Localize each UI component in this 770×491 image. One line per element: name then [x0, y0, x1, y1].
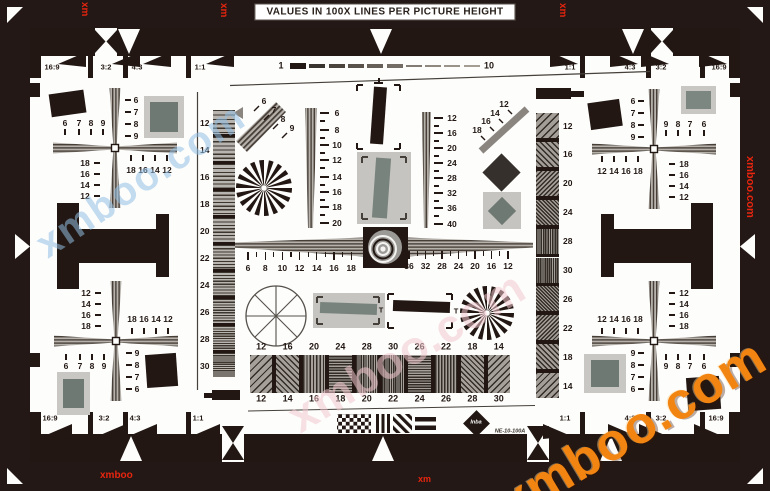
- scale-label: 7: [688, 362, 693, 371]
- scale-label: 22: [200, 254, 209, 263]
- scale-label: 9: [664, 362, 669, 371]
- scale-label: 16: [679, 171, 688, 180]
- scale-label: 16: [487, 262, 496, 271]
- scale-label: 24: [454, 262, 463, 271]
- striped-bar-segment: [213, 353, 235, 377]
- dash-mark: [434, 162, 443, 164]
- scale-label: 32: [447, 189, 456, 198]
- ruler-tick: [417, 251, 418, 256]
- scale-label: 16: [81, 311, 90, 320]
- corner-registration-mark: [357, 148, 363, 150]
- scale-label: 24: [415, 395, 425, 404]
- scale-label: 6: [135, 385, 140, 394]
- dash-scale-step: [309, 64, 325, 69]
- dash-scale-step: [367, 64, 383, 68]
- dash-mark: [125, 111, 132, 113]
- tick-mark: [637, 156, 638, 162]
- ruler-tick: [273, 252, 274, 257]
- tick-mark: [143, 328, 144, 334]
- corner-registration-mark: [362, 218, 368, 220]
- dash-mark: [434, 140, 439, 142]
- ruler-tick: [316, 252, 317, 260]
- scale-label: 20: [309, 343, 319, 352]
- ruler-tick: [483, 251, 484, 256]
- tick-mark: [703, 130, 704, 136]
- corner-registration-mark: [357, 84, 363, 86]
- ruler-tick: [491, 251, 492, 259]
- tick-mark: [79, 354, 80, 360]
- scale-label: 20: [362, 395, 372, 404]
- tick-mark: [689, 354, 690, 360]
- scale-label: 14: [151, 315, 160, 324]
- dash-mark: [434, 215, 439, 217]
- scale-label: 6: [262, 97, 267, 106]
- scale-label: 14: [200, 146, 209, 155]
- corner-registration-mark: [399, 85, 401, 91]
- scale-label: 12: [597, 167, 606, 176]
- scale-label: 7: [77, 119, 82, 128]
- ruler-tick: [458, 251, 459, 259]
- striped-bar-segment: [213, 164, 235, 188]
- scale-label: 12: [295, 264, 304, 273]
- scale-label: 18: [332, 203, 341, 212]
- corner-registration-mark: [362, 156, 368, 158]
- ruler-tick: [333, 252, 334, 260]
- scale-label: 18: [335, 395, 345, 404]
- tick-mark: [65, 354, 66, 360]
- dash-mark: [95, 314, 102, 316]
- scale-label: 20: [332, 219, 341, 228]
- chart-title: VALUES IN 100X LINES PER PICTURE HEIGHT: [254, 4, 515, 21]
- aspect-ratio-label: 1:1: [560, 414, 571, 422]
- ruler-tick: [441, 251, 442, 259]
- dash-mark: [434, 192, 443, 194]
- scale-label: 12: [597, 315, 606, 324]
- striped-bar-segment: [536, 113, 559, 138]
- tick-mark: [91, 354, 92, 360]
- resolution-bar-segment: [303, 355, 325, 393]
- chart-title-text: VALUES IN 100X LINES PER PICTURE HEIGHT: [266, 7, 503, 18]
- scale-label: 18: [633, 315, 642, 324]
- scale-label: 6: [246, 264, 251, 273]
- scale-label: 18: [472, 126, 481, 135]
- scale-label: 24: [563, 208, 572, 217]
- tick-mark: [677, 130, 678, 136]
- resolution-bar-segment: [408, 355, 430, 393]
- scale-label: 12: [499, 100, 508, 109]
- dash-mark: [669, 174, 676, 176]
- tick-mark: [613, 328, 614, 334]
- scale-label: 7: [78, 362, 83, 371]
- ruler-tick: [342, 252, 343, 257]
- scale-label: 6: [631, 97, 636, 106]
- scale-label: 14: [494, 343, 504, 352]
- dash-scale-step: [329, 64, 345, 68]
- scale-label: 9: [631, 133, 636, 142]
- corner-registration-mark: [361, 157, 363, 163]
- striped-bar-segment: [536, 344, 559, 369]
- corner-registration-mark: [388, 293, 394, 295]
- tick-mark: [625, 156, 626, 162]
- scale-label: 24: [447, 159, 456, 168]
- tick-mark: [103, 354, 104, 360]
- scale-label: 28: [447, 174, 456, 183]
- scale-label: 14: [312, 264, 321, 273]
- aspect-ratio-label: 4:3: [625, 414, 636, 422]
- corner-registration-mark: [399, 143, 401, 149]
- corner-registration-mark: [378, 297, 380, 303]
- ruler-tick: [425, 251, 426, 259]
- dash-mark: [126, 352, 133, 354]
- dash-mark: [434, 117, 443, 119]
- striped-bar-segment: [536, 286, 559, 311]
- scale-label: 10: [332, 141, 341, 150]
- corner-registration-mark: [317, 296, 323, 298]
- resolution-bar-segment: [276, 355, 298, 393]
- corner-registration-mark: [378, 318, 380, 324]
- scale-label: 6: [631, 385, 636, 394]
- scale-label: 18: [563, 352, 572, 361]
- scale-label: 12: [679, 193, 688, 202]
- scale-label: 9: [102, 362, 107, 371]
- scale-label: 14: [150, 166, 159, 175]
- dash-mark: [125, 135, 132, 137]
- corner-registration-mark: [451, 322, 453, 328]
- striped-bar-segment: [213, 110, 235, 134]
- dash-mark: [320, 191, 329, 193]
- bar-end-t-mark: [204, 393, 212, 398]
- scale-label: 16: [200, 173, 209, 182]
- aspect-ratio-label: 3:2: [101, 63, 112, 71]
- corner-registration-mark: [356, 85, 358, 91]
- scale-label: 12: [332, 156, 341, 165]
- scale-label: 40: [447, 220, 456, 229]
- dash-scale-step: [425, 65, 441, 67]
- scale-label: 26: [441, 395, 451, 404]
- aspect-ratio-label: 16:9: [708, 414, 723, 422]
- striped-bar-segment: [213, 326, 235, 350]
- dash-mark: [94, 173, 101, 175]
- dash-mark: [126, 388, 133, 390]
- ruler-tick: [282, 252, 283, 260]
- scale-label: 8: [263, 264, 268, 273]
- dash-mark: [320, 199, 325, 201]
- dash-scale-end: 10: [484, 62, 494, 71]
- scale-label: 12: [81, 289, 90, 298]
- dash-scale-step: [464, 65, 480, 66]
- scale-label: 18: [679, 160, 688, 169]
- dash-mark: [320, 222, 329, 224]
- tick-mark: [689, 130, 690, 136]
- scale-label: 18: [346, 264, 355, 273]
- resolution-bar-segment: [329, 355, 351, 393]
- scale-label: 14: [679, 182, 688, 191]
- aspect-ratio-label: 3:2: [656, 414, 667, 422]
- scale-label: 20: [470, 262, 479, 271]
- resolution-bar-segment: [488, 355, 510, 393]
- corner-registration-mark: [388, 327, 394, 329]
- scale-label: 16: [138, 166, 147, 175]
- resolution-bar-segment: [356, 355, 378, 393]
- aspect-ratio-label: 16:9: [42, 414, 57, 422]
- scale-label: 12: [256, 343, 266, 352]
- tick-mark: [78, 129, 79, 135]
- scale-label: 9: [664, 120, 669, 129]
- scale-label: 16: [329, 264, 338, 273]
- scale-label: 7: [631, 109, 636, 118]
- ruler-tick: [351, 252, 352, 260]
- aspect-ratio-label: 4:3: [132, 63, 143, 71]
- scale-label: 8: [676, 120, 681, 129]
- dash-mark: [125, 123, 132, 125]
- scale-label: 18: [467, 343, 477, 352]
- dash-mark: [320, 120, 325, 122]
- tick-mark: [64, 129, 65, 135]
- ruler-tick: [499, 251, 500, 256]
- tick-mark: [637, 328, 638, 334]
- scale-label: 22: [441, 343, 451, 352]
- dash-mark: [638, 376, 645, 378]
- dash-mark: [126, 364, 133, 366]
- aspect-ratio-label: 1:1: [565, 63, 576, 71]
- dash-mark: [638, 112, 645, 114]
- corner-registration-mark: [356, 143, 358, 149]
- aspect-ratio-label: 1:1: [195, 63, 206, 71]
- scale-label: 28: [362, 343, 372, 352]
- scale-label: 7: [272, 106, 277, 115]
- dash-mark: [126, 376, 133, 378]
- corner-registration-mark: [387, 322, 389, 328]
- dash-mark: [434, 155, 439, 157]
- aspect-ratio-label: 3:2: [656, 63, 667, 71]
- scale-label: 16: [679, 311, 688, 320]
- scale-label: 9: [290, 124, 295, 133]
- resolution-bar-segment: [461, 355, 483, 393]
- dash-mark: [434, 147, 443, 149]
- scale-label: 26: [563, 295, 572, 304]
- aspect-ratio-label: 16:9: [711, 63, 726, 71]
- dash-mark: [320, 144, 329, 146]
- dash-mark: [434, 185, 439, 187]
- tick-mark: [166, 155, 167, 161]
- scale-label: 6: [702, 120, 707, 129]
- scale-label: 7: [688, 120, 693, 129]
- dash-mark: [320, 214, 325, 216]
- t-mark: T: [454, 307, 459, 315]
- scale-label: 28: [467, 395, 477, 404]
- scale-label: 7: [134, 108, 139, 117]
- scale-label: 16: [563, 150, 572, 159]
- scale-label: 9: [135, 349, 140, 358]
- resolution-bar-segment: [250, 355, 272, 393]
- logo-serial-text: NE-10-100A: [495, 429, 526, 435]
- scale-label: 16: [621, 315, 630, 324]
- ruler-tick: [433, 251, 434, 256]
- dash-mark: [94, 184, 101, 186]
- scale-label: 14: [609, 315, 618, 324]
- corner-registration-mark: [387, 294, 389, 300]
- scale-label: 6: [64, 362, 69, 371]
- scale-label: 14: [679, 300, 688, 309]
- tick-mark: [130, 155, 131, 161]
- dash-mark: [638, 124, 645, 126]
- dash-mark: [320, 159, 329, 161]
- scale-label: 8: [89, 119, 94, 128]
- ruler-tick: [290, 252, 291, 257]
- ruler-tick: [299, 252, 300, 260]
- scale-label: 8: [135, 361, 140, 370]
- bar-end-t-mark: [212, 390, 240, 400]
- dash-mark: [95, 292, 102, 294]
- dash-scale-start: 1: [278, 62, 283, 71]
- scale-label: 16: [332, 188, 341, 197]
- scale-label: 16: [621, 167, 630, 176]
- scale-label: 20: [200, 227, 209, 236]
- scale-label: 36: [447, 204, 456, 213]
- scale-label: 7: [135, 373, 140, 382]
- tick-mark: [613, 156, 614, 162]
- scale-label: 18: [127, 315, 136, 324]
- dash-mark: [94, 195, 101, 197]
- ruler-tick: [450, 251, 451, 256]
- dash-mark: [320, 206, 329, 208]
- scale-label: 6: [335, 109, 340, 118]
- dash-mark: [434, 207, 443, 209]
- scale-label: 9: [101, 119, 106, 128]
- scale-label: 18: [679, 322, 688, 331]
- dash-mark: [320, 129, 329, 131]
- corner-registration-mark: [317, 323, 323, 325]
- striped-bar-segment: [536, 171, 559, 196]
- corner-registration-mark: [405, 213, 407, 219]
- dash-mark: [638, 388, 645, 390]
- dash-mark: [638, 364, 645, 366]
- tick-mark: [601, 156, 602, 162]
- dash-mark: [95, 325, 102, 327]
- dash-mark: [638, 100, 645, 102]
- scale-label: 28: [200, 335, 209, 344]
- scale-label: 30: [388, 343, 398, 352]
- tick-mark: [665, 130, 666, 136]
- center-tick: [378, 78, 380, 83]
- scale-label: 26: [200, 308, 209, 317]
- dash-mark: [125, 99, 132, 101]
- scale-label: 12: [563, 121, 572, 130]
- tick-mark: [625, 328, 626, 334]
- scale-label: 14: [283, 395, 293, 404]
- ruler-tick: [308, 252, 309, 257]
- tick-mark: [155, 328, 156, 334]
- scale-label: 32: [421, 262, 430, 271]
- dash-mark: [320, 167, 325, 169]
- aspect-ratio-label: 4:3: [625, 63, 636, 71]
- scale-label: 30: [563, 266, 572, 275]
- scale-label: 12: [200, 119, 209, 128]
- aspect-ratio-label: 3:2: [99, 414, 110, 422]
- dash-mark: [434, 132, 443, 134]
- scale-label: 30: [200, 362, 209, 371]
- scale-label: 22: [388, 395, 398, 404]
- scale-label: 18: [126, 166, 135, 175]
- dash-mark: [320, 184, 325, 186]
- resolution-bar-segment: [435, 355, 457, 393]
- scale-label: 24: [335, 343, 345, 352]
- striped-bar-segment: [536, 200, 559, 225]
- scale-label: 14: [332, 173, 341, 182]
- dash-scale-step: [444, 65, 460, 67]
- scale-label: 30: [494, 395, 504, 404]
- dash-mark: [669, 325, 676, 327]
- tick-mark: [142, 155, 143, 161]
- bar-end-t-mark: [571, 91, 584, 97]
- ruler-tick: [474, 251, 475, 259]
- dash-mark: [638, 352, 645, 354]
- tick-mark: [601, 328, 602, 334]
- scale-label: 6: [63, 119, 68, 128]
- tick-mark: [90, 129, 91, 135]
- ruler-tick: [265, 252, 266, 260]
- ruler-tick: [466, 251, 467, 256]
- dash-mark: [94, 162, 101, 164]
- corner-registration-mark: [405, 157, 407, 163]
- dash-mark: [434, 200, 439, 202]
- tick-mark: [154, 155, 155, 161]
- scale-label: 16: [481, 117, 490, 126]
- aspect-ratio-label: 4:3: [130, 414, 141, 422]
- bar-end-t-mark: [536, 88, 571, 99]
- scale-label: 18: [80, 159, 89, 168]
- corner-registration-mark: [361, 213, 363, 219]
- dash-mark: [669, 163, 676, 165]
- iso-resolution-test-chart: 16:93:24:31:11:14:33:216:916:93:24:31:11…: [0, 0, 770, 491]
- tick-mark: [665, 354, 666, 360]
- scale-label: 12: [162, 166, 171, 175]
- scale-label: 14: [81, 300, 90, 309]
- striped-bar-segment: [213, 137, 235, 161]
- dash-scale-step: [348, 64, 364, 68]
- tick-mark: [102, 129, 103, 135]
- scale-label: 28: [437, 262, 446, 271]
- striped-bar-segment: [213, 191, 235, 215]
- scale-label: 20: [447, 144, 456, 153]
- scale-label: 8: [335, 126, 340, 135]
- scale-label: 26: [415, 343, 425, 352]
- aspect-ratio-label: 1:1: [193, 414, 204, 422]
- tick-mark: [167, 328, 168, 334]
- striped-bar-segment: [536, 229, 559, 254]
- scale-label: 12: [80, 192, 89, 201]
- scale-label: 14: [80, 181, 89, 190]
- scale-label: 16: [139, 315, 148, 324]
- dash-mark: [434, 223, 443, 225]
- striped-bar-segment: [536, 142, 559, 167]
- chart-labels-layer: 16:93:24:31:11:14:33:216:916:93:24:31:11…: [0, 0, 770, 491]
- dash-mark: [320, 176, 329, 178]
- dash-mark: [434, 170, 439, 172]
- aspect-ratio-label: 16:9: [44, 63, 59, 71]
- scale-label: 12: [447, 114, 456, 123]
- scale-label: 16: [80, 170, 89, 179]
- striped-bar-segment: [213, 218, 235, 242]
- striped-bar-segment: [213, 245, 235, 269]
- t-mark: T: [379, 306, 384, 314]
- scale-label: 12: [163, 315, 172, 324]
- dash-mark: [669, 303, 676, 305]
- dash-scale-step: [290, 63, 306, 68]
- dash-scale-step: [387, 64, 403, 67]
- scale-label: 12: [503, 262, 512, 271]
- scale-label: 14: [490, 109, 499, 118]
